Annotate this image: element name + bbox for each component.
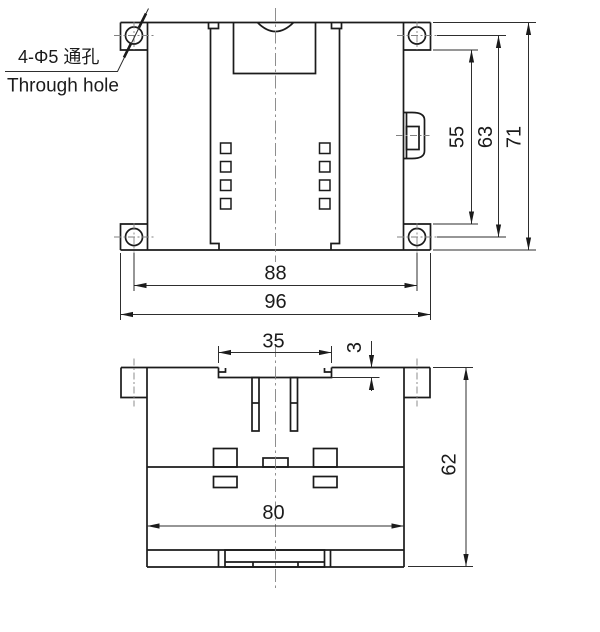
prong-right [291, 378, 298, 432]
dimension-drawing: 55 63 71 88 96 4-Φ5 通孔 Through hole [0, 0, 600, 632]
bottom-view [121, 344, 430, 588]
left-notch [209, 23, 219, 29]
dim-71-label: 71 [504, 126, 526, 148]
dim-55-label: 55 [447, 126, 469, 148]
lower-slot-left [214, 477, 238, 488]
bottom-view-dimensions: 35 3 80 62 [147, 331, 473, 567]
dim-63-label: 63 [475, 126, 497, 148]
leader-tick-upper [139, 14, 146, 28]
note-cn-label: 4-Φ5 通孔 [18, 47, 99, 67]
inner-panel-right-line [331, 29, 340, 251]
recess-hook-right [325, 368, 332, 372]
dim-3-label: 3 [344, 342, 366, 353]
inner-panel-left-line [211, 29, 220, 251]
mid-block-right [314, 449, 338, 468]
bottom-strip-center-box [225, 550, 325, 567]
recess-hook-left [219, 368, 226, 372]
right-notch [332, 23, 342, 29]
connector-recess [234, 23, 316, 74]
prong-left [252, 378, 259, 432]
front-view [114, 8, 437, 262]
top-recess [219, 368, 332, 378]
dim-62-label: 62 [439, 453, 461, 475]
dim-35-label: 35 [262, 331, 284, 353]
side-clip-latch [407, 127, 420, 150]
mid-block-left [214, 449, 238, 468]
technical-drawing-page: 55 63 71 88 96 4-Φ5 通孔 Through hole [0, 0, 600, 632]
dim-96-label: 96 [264, 291, 286, 313]
dim-80-label: 80 [262, 502, 284, 524]
lower-slot-right [314, 477, 338, 488]
dim-88-label: 88 [264, 263, 286, 285]
note-en-label: Through hole [7, 76, 119, 97]
